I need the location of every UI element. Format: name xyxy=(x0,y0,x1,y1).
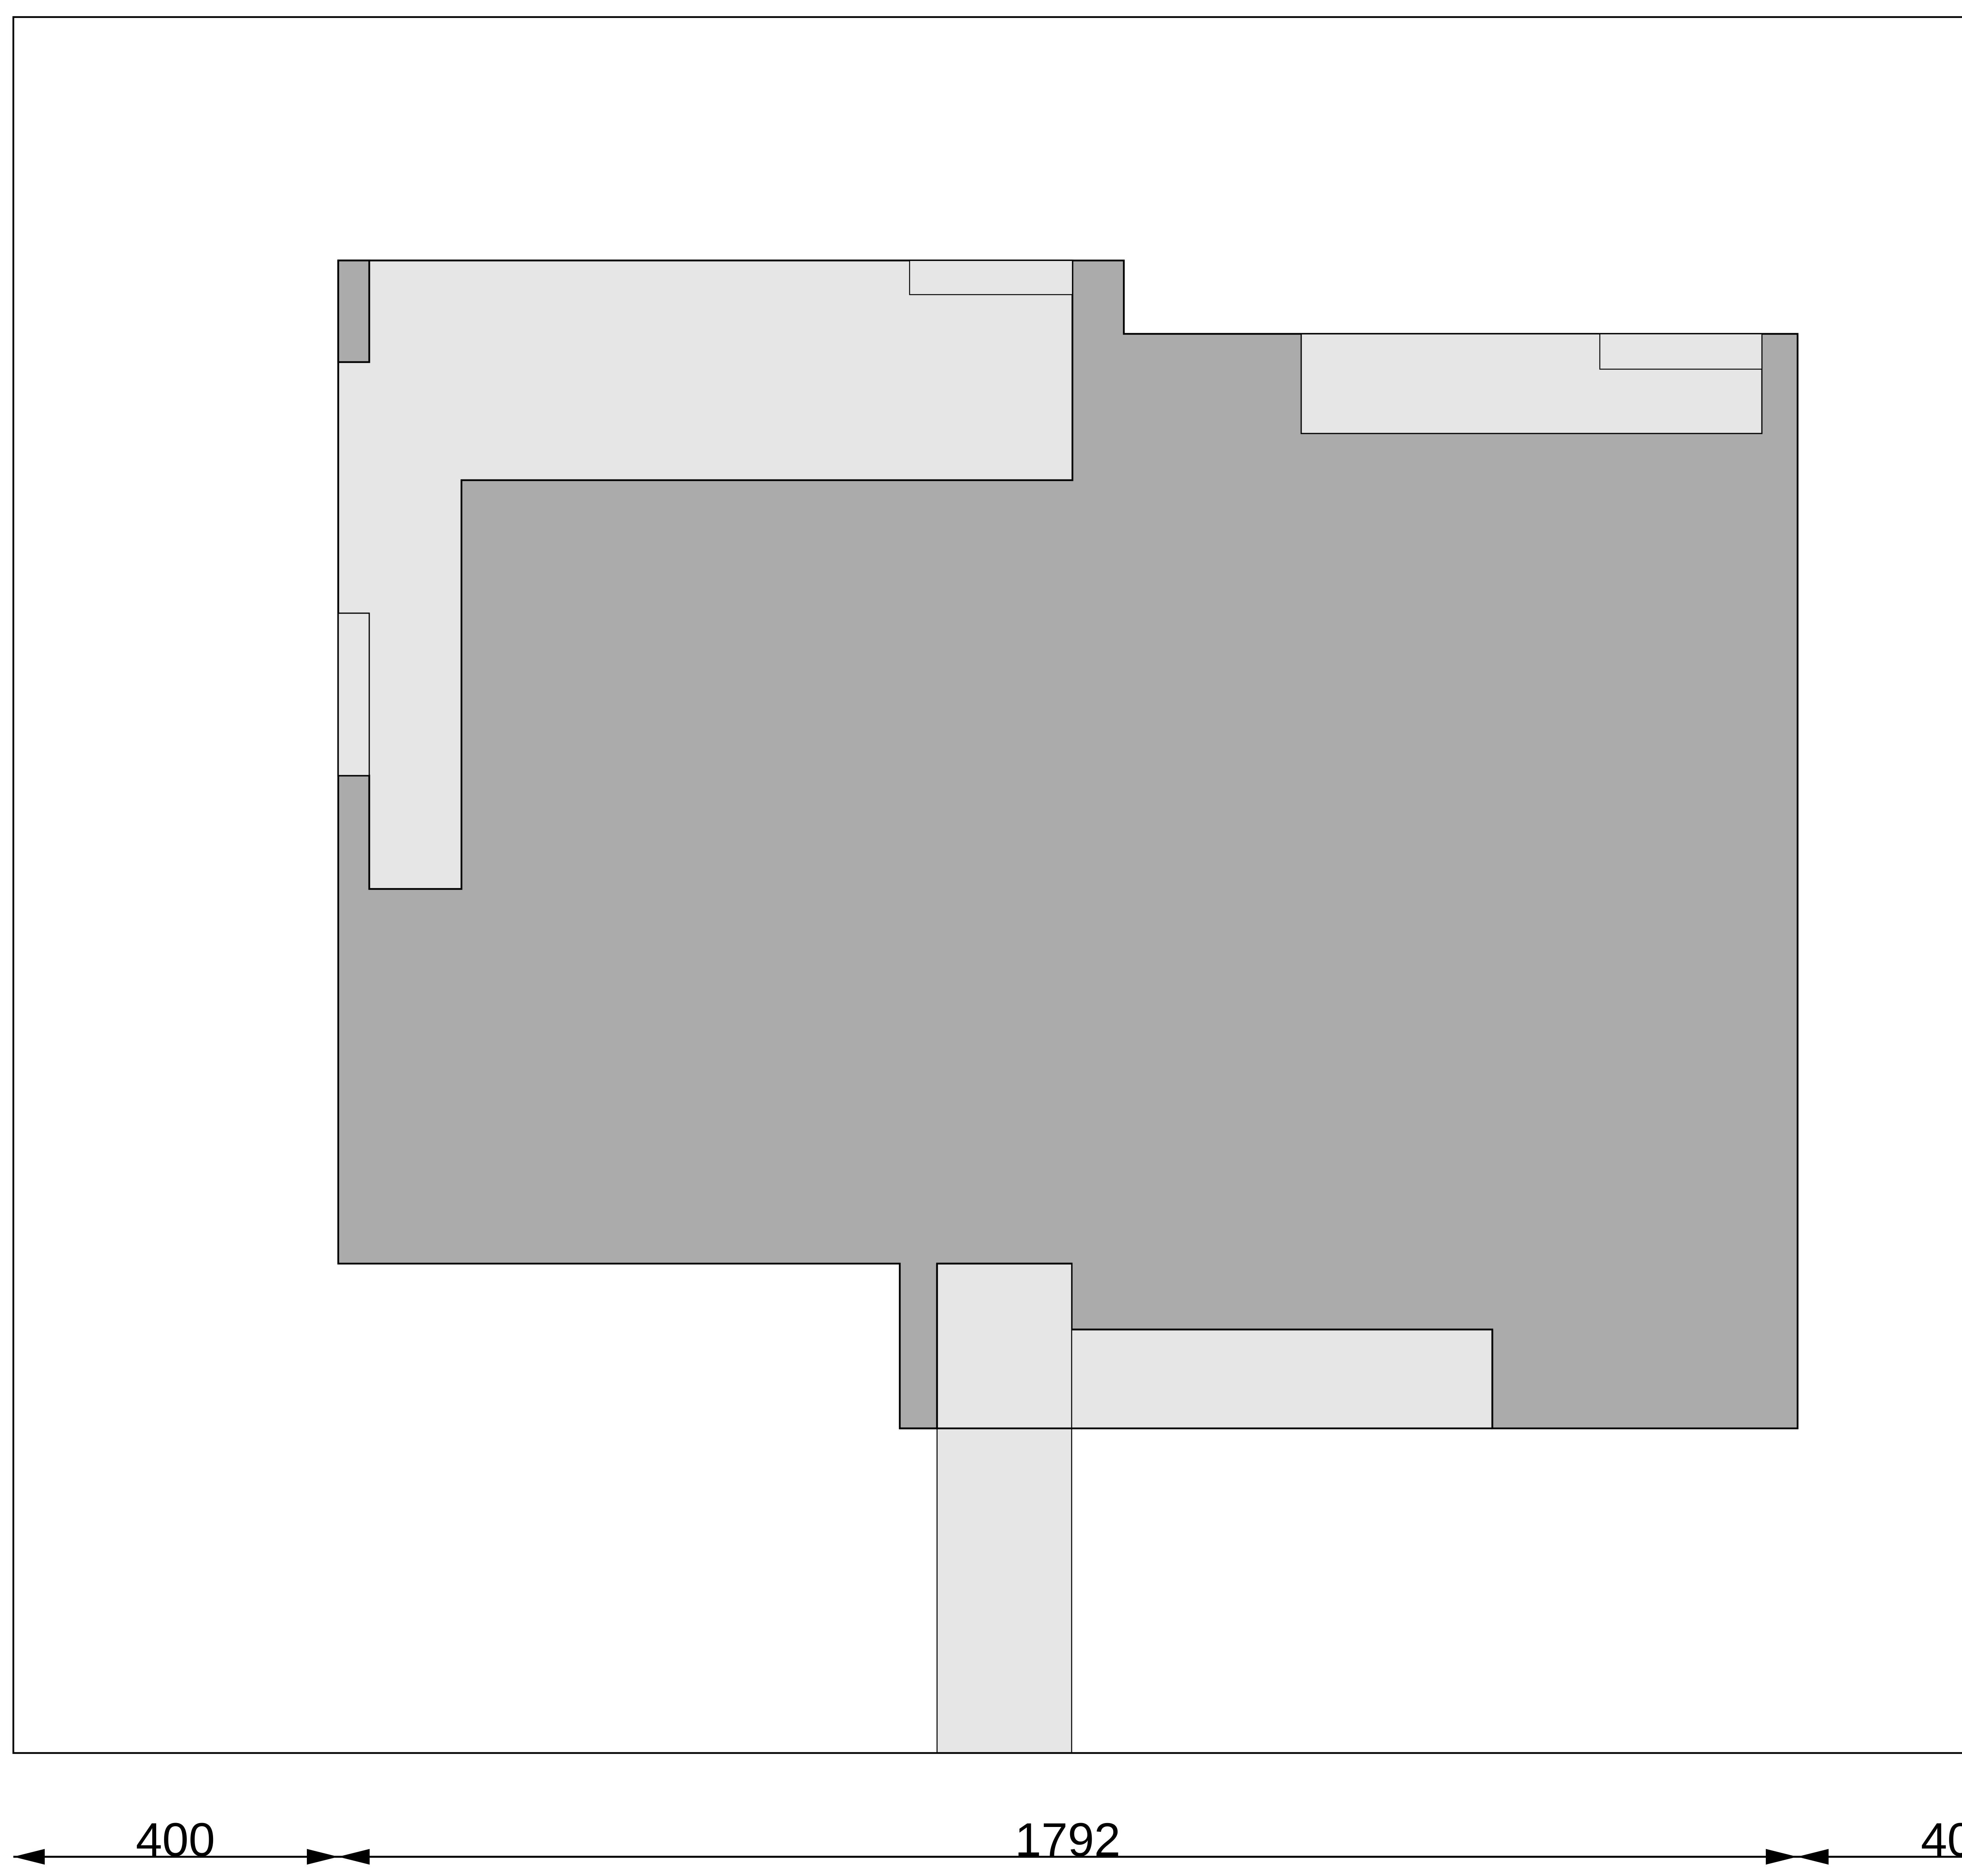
svg-text:400: 400 xyxy=(136,1813,215,1866)
svg-text:1792: 1792 xyxy=(1015,1813,1120,1866)
svg-text:400: 400 xyxy=(1921,1813,1962,1866)
